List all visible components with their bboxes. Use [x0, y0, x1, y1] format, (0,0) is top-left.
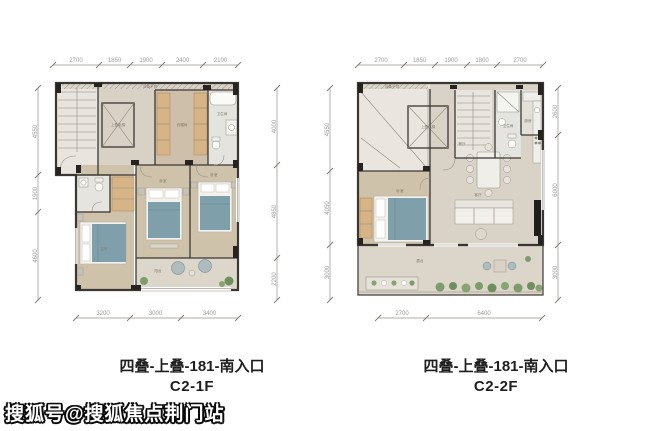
dim-1f-top-2: 1900: [139, 58, 153, 64]
room-label-master-1f: 主卧: [100, 246, 108, 251]
dim-1f-top-0: 2700: [69, 58, 83, 64]
caption-1f: 四叠-上叠-181-南入口 C2-1F: [82, 357, 302, 397]
room-label-kitchen-2f: 厨房: [524, 118, 532, 123]
dim-1f-top-1: 1850: [108, 58, 122, 64]
dim-1f-bottom-2: 3400: [203, 311, 217, 317]
room-label-bath-2f: 卫生间: [503, 123, 514, 128]
tv-2f-icon: [534, 200, 541, 236]
room-label-bedroom3-1f: 卧室: [210, 172, 218, 177]
dim-1f-right-2: 2200: [272, 272, 278, 286]
terrace-doors-2f: [378, 244, 518, 247]
room-label-elevator-1f: 上叠电梯: [111, 122, 126, 127]
room-label-living-2f: 客厅: [474, 192, 482, 197]
dim-2f-left-2: 3000: [325, 265, 331, 279]
room-label-dining-2f: 餐厅: [458, 141, 466, 146]
caption-1f-line2: C2-1F: [82, 377, 302, 397]
room-label-bedroom2-1f: 卧室: [159, 178, 167, 183]
room-label-closet-1f: 衣帽间: [177, 122, 188, 127]
caption-2f: 四叠-上叠-181-南入口 C2-2F: [386, 357, 606, 397]
master-wardrobe-1f-icon: [112, 177, 134, 211]
caption-2f-line2: C2-2F: [386, 377, 606, 397]
room-label-equipment-1f: 设备平台: [143, 84, 158, 89]
dim-2f-bottom-0: 2700: [395, 311, 409, 317]
dim-2f-top-2: 1900: [444, 58, 458, 64]
bed-bedroom3-1f-icon: [191, 182, 237, 232]
dim-1f-right-0: 4000: [272, 119, 278, 133]
wardrobe-2f-icon: [360, 198, 372, 238]
windows-2f: [541, 150, 545, 210]
room-label-bedroom-2f: 卧室: [396, 188, 404, 193]
plan-drawing-1f: 设备平台 上叠电梯 衣帽间 卫生间 主卧 卧室 卧室 阳台: [56, 83, 240, 292]
plan-drawing-2f: 设备平台 上叠电梯 卫生间 厨房 餐厅 客厅 卧室 露台: [358, 83, 545, 295]
room-label-elevator-2f: 上叠电梯: [421, 124, 436, 129]
dim-1f-left-1: 1900: [33, 186, 39, 200]
dim-1f-left-2: 4600: [33, 249, 39, 263]
dim-2f-top-1: 1850: [413, 58, 427, 64]
caption-1f-line1: 四叠-上叠-181-南入口: [82, 357, 302, 377]
dim-2f-right-2: 3000: [553, 265, 559, 279]
dim-1f-left-0: 4550: [33, 124, 39, 138]
dim-2f-top-0: 2700: [374, 58, 388, 64]
room-label-balcony-1f: 阳台: [154, 268, 162, 273]
bed-2f-icon: [360, 196, 428, 242]
dim-1f-top-4: 2100: [214, 58, 228, 64]
room-label-equipment-2f: 设备平台: [385, 84, 400, 89]
dim-2f-bottom-1: 6400: [477, 311, 491, 317]
dim-1f-bottom-1: 3000: [149, 311, 163, 317]
dim-2f-top-4: 2700: [513, 58, 527, 64]
dim-1f-top-3: 2400: [176, 58, 190, 64]
dim-1f-right-1: 4850: [272, 204, 278, 218]
dim-2f-right-1: 6000: [553, 183, 559, 197]
dim-2f-right-0: 2600: [553, 104, 559, 118]
floorplan-page: 设备平台 上叠电梯 衣帽间 卫生间 主卧 卧室 卧室 阳台 2700 1850 …: [0, 0, 660, 431]
room-label-bath-1f: 卫生间: [217, 111, 228, 116]
room-label-terrace-2f: 露台: [416, 258, 424, 263]
dim-2f-left-1: 4050: [325, 201, 331, 215]
caption-2f-line1: 四叠-上叠-181-南入口: [386, 357, 606, 377]
dim-1f-bottom-0: 3200: [96, 311, 110, 317]
dim-2f-left-0: 4550: [325, 122, 331, 136]
dim-2f-top-3: 1800: [475, 58, 489, 64]
watermark-text: 搜狐号@搜狐焦点荆门站: [5, 399, 225, 426]
